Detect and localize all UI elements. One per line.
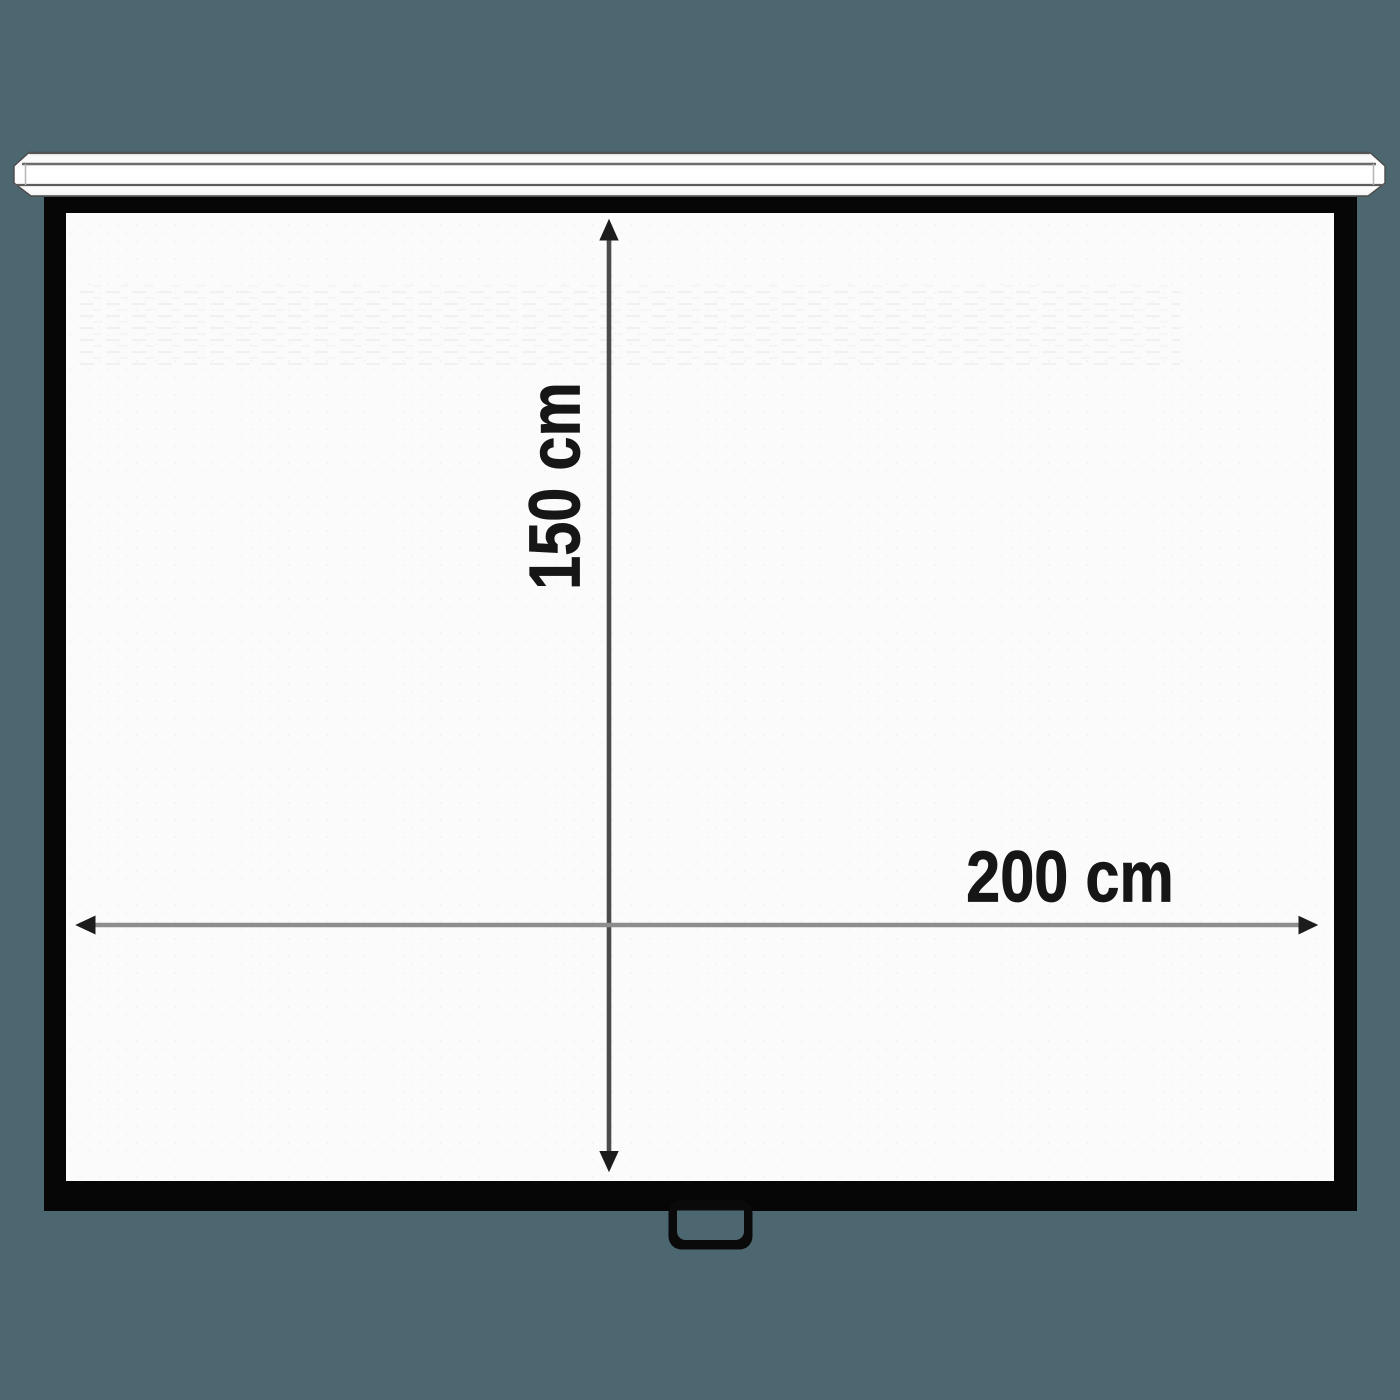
svg-text:150 cm: 150 cm [515,382,596,590]
svg-text:200 cm: 200 cm [966,837,1174,918]
